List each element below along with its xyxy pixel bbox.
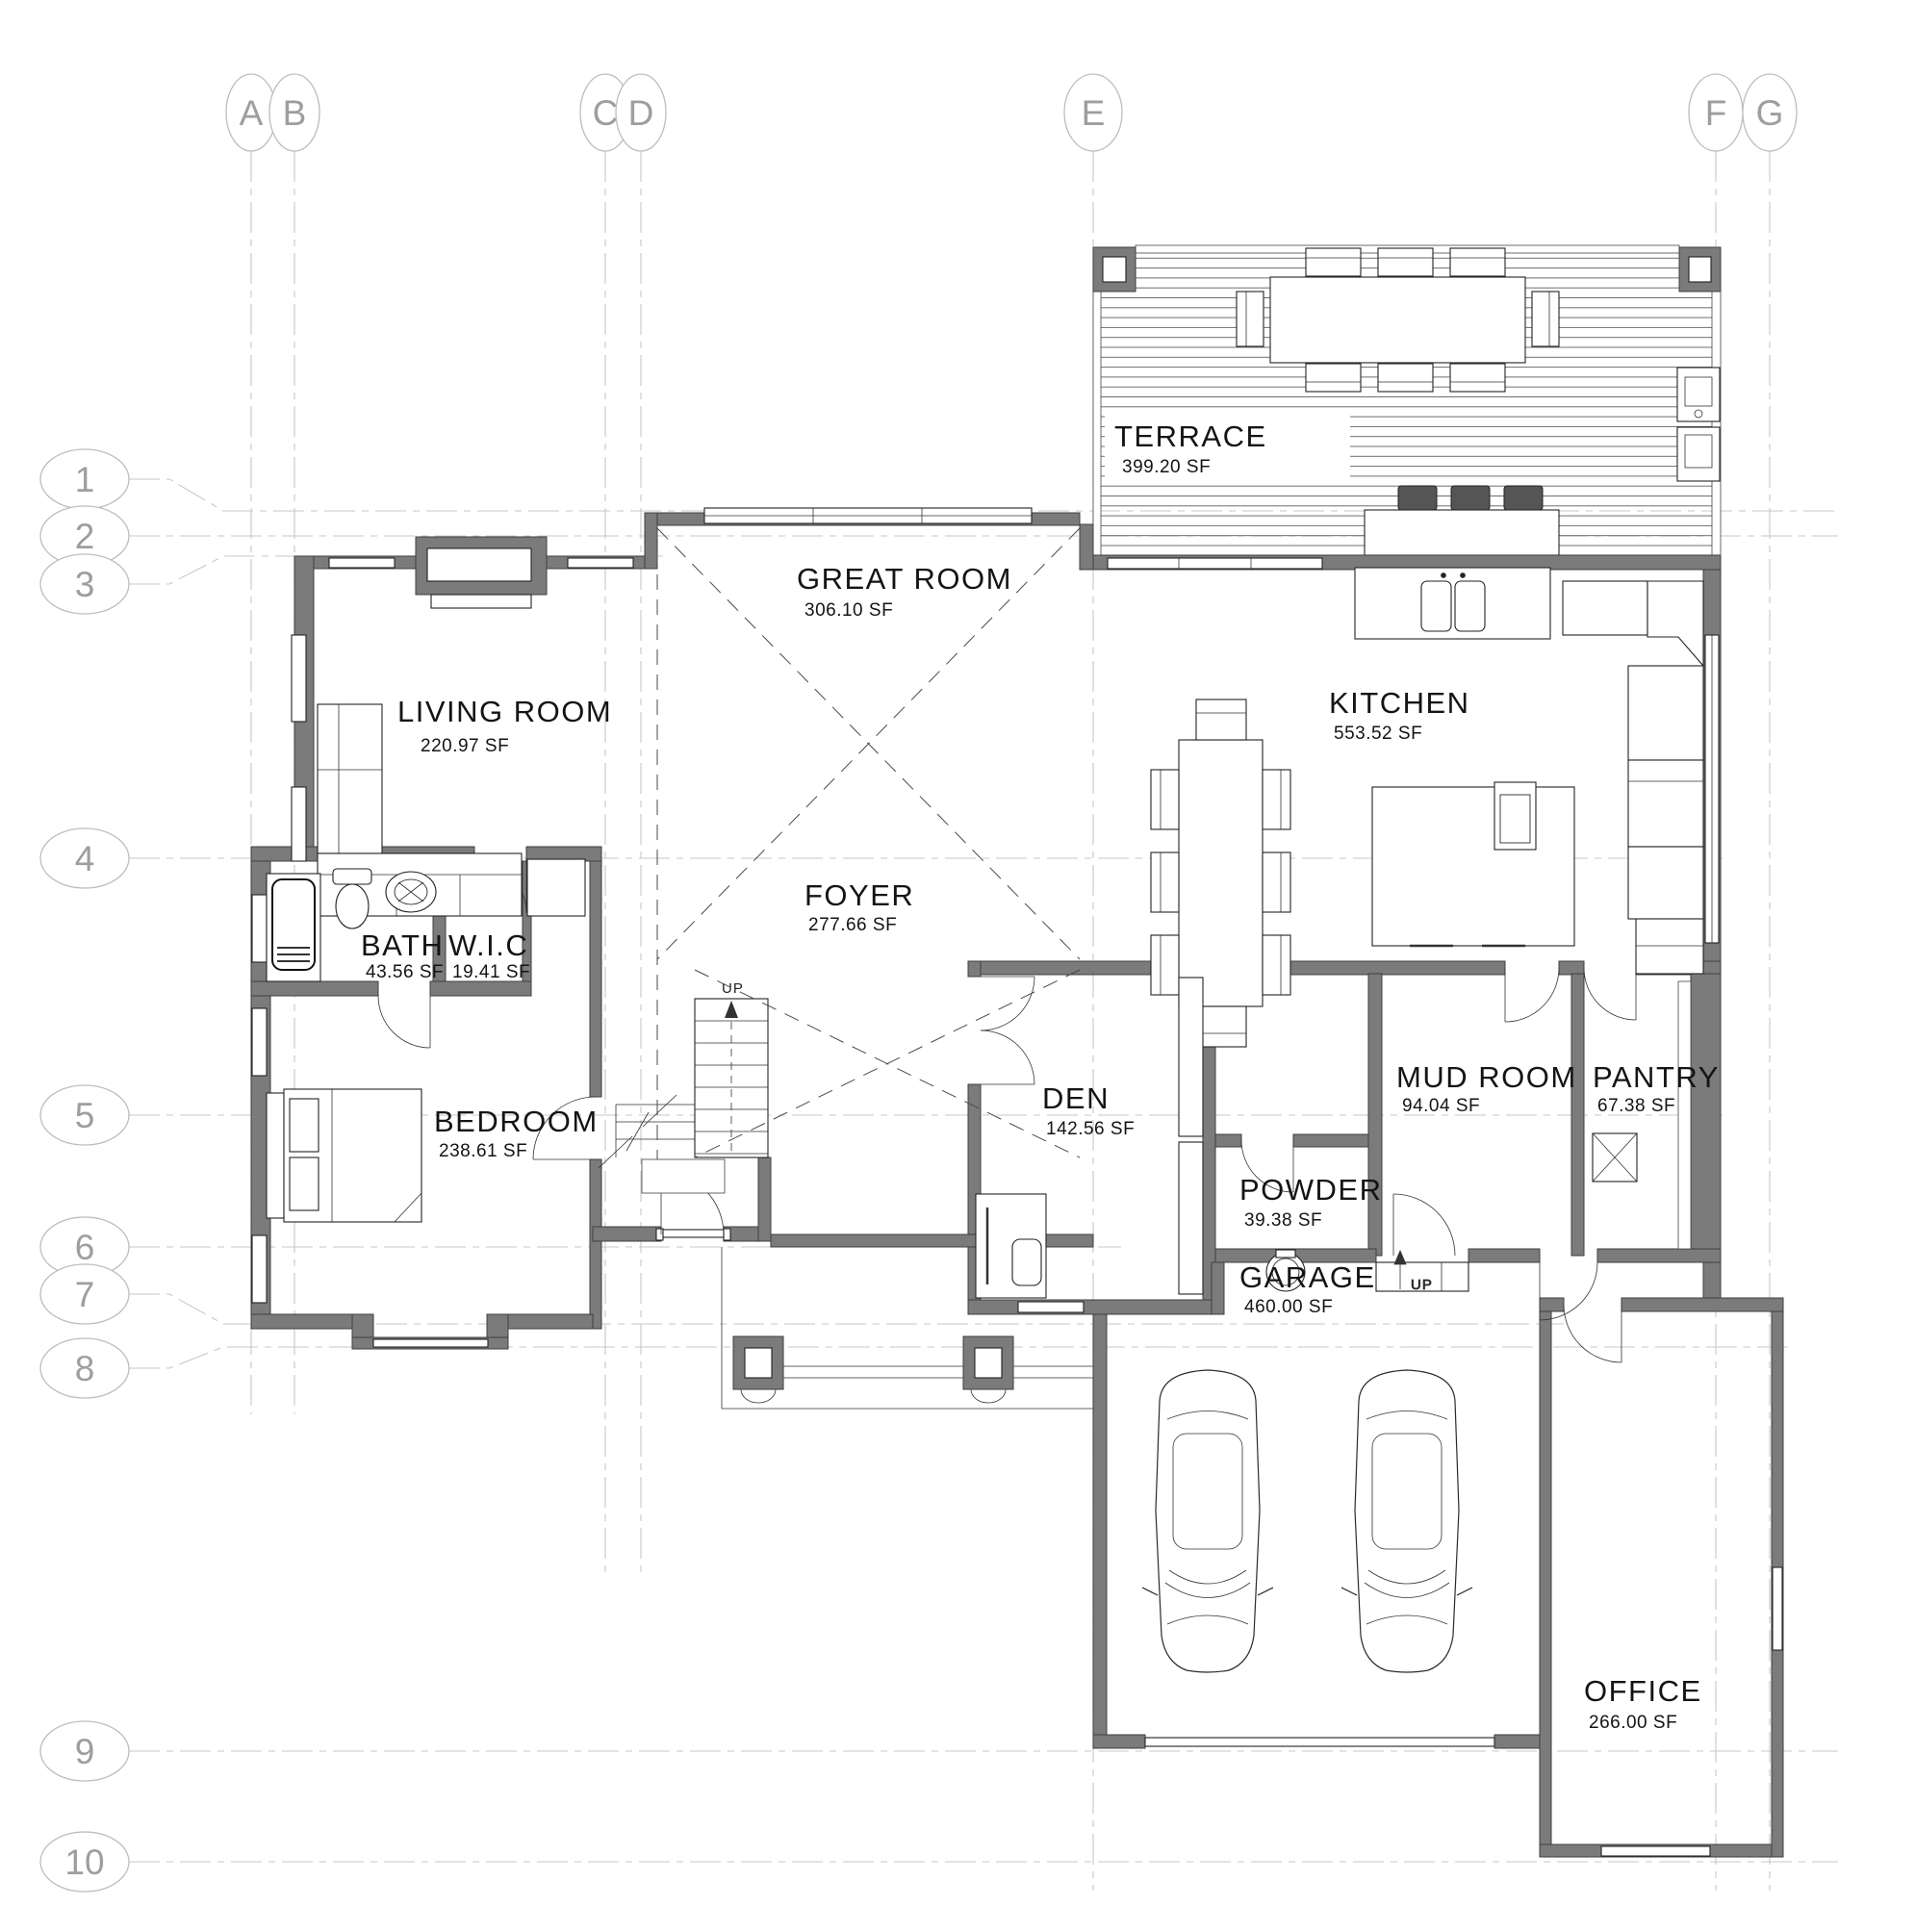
grid-col-label: B <box>283 93 307 133</box>
toilet <box>333 869 371 928</box>
den-french-doors <box>981 977 1034 1084</box>
terrace-left-edge <box>1093 292 1101 555</box>
grid-row-label: 3 <box>75 565 95 604</box>
room-label-kitchen: KITCHEN <box>1329 686 1470 720</box>
grid-row-label: 1 <box>75 460 95 499</box>
grid-row-label: 9 <box>75 1732 95 1771</box>
terrace-bar-counter <box>1365 510 1559 555</box>
room-area-kitchen: 553.52 SF <box>1334 724 1422 744</box>
garage-up-label: UP <box>1411 1277 1433 1293</box>
grid-col-label: F <box>1705 93 1727 133</box>
room-label-powder: POWDER <box>1239 1173 1383 1207</box>
room-area-living-room: 220.97 SF <box>421 736 509 756</box>
office-door <box>1564 1305 1621 1362</box>
grid-row-label: 8 <box>75 1349 95 1388</box>
living-room-window <box>292 787 306 861</box>
office-window <box>1601 1846 1710 1856</box>
grid-row-label: 2 <box>75 517 95 556</box>
room-area-den: 142.56 SF <box>1046 1119 1135 1139</box>
terrace <box>1093 245 1721 555</box>
car <box>1341 1370 1472 1672</box>
room-label-bath: BATH <box>361 928 444 962</box>
bedroom-bay-window <box>373 1339 488 1347</box>
terrace-table <box>1270 277 1525 363</box>
bedroom-window <box>252 1235 267 1303</box>
den-desk <box>976 1194 1046 1298</box>
room-label-pantry: PANTRY <box>1593 1060 1720 1094</box>
den-bookcases <box>1179 978 1203 1294</box>
bedroom-window <box>252 895 267 962</box>
room-area-bath: 43.56 SF <box>366 962 444 982</box>
stair: UP <box>599 980 768 1193</box>
bar-stool <box>1451 486 1490 510</box>
room-area-wic: 19.41 SF <box>452 962 530 982</box>
room-label-foyer: FOYER <box>804 878 914 912</box>
kitchen-island <box>1372 782 1574 946</box>
porch-column-base <box>741 1389 776 1403</box>
bath-door <box>378 996 430 1048</box>
bathtub <box>267 874 320 981</box>
bed <box>267 1089 421 1222</box>
mud-garage-door <box>1393 1194 1455 1256</box>
bedroom-window <box>252 1008 267 1076</box>
dining-set <box>1151 699 1290 1047</box>
entry-sidelight <box>724 1229 730 1240</box>
room-label-great-room: GREAT ROOM <box>797 562 1012 596</box>
grid-col-label: A <box>240 93 264 133</box>
room-label-wic: W.I.C <box>448 928 528 962</box>
grid-col-label: G <box>1756 93 1784 133</box>
terrace-post-left-core <box>1103 257 1126 282</box>
bar-stool <box>1504 486 1543 510</box>
room-area-terrace: 399.20 SF <box>1122 457 1211 477</box>
grid-row-label: 10 <box>64 1843 104 1882</box>
bar-stool <box>1398 486 1437 510</box>
kitchen-cabinets <box>1563 581 1703 974</box>
pantry-door <box>1584 968 1636 1020</box>
porch-column-base <box>971 1389 1006 1403</box>
room-label-den: DEN <box>1042 1081 1110 1115</box>
living-room-window <box>568 558 633 568</box>
grid-row-label: 4 <box>75 839 95 878</box>
porch-column-core <box>745 1348 772 1378</box>
room-label-terrace: TERRACE <box>1114 419 1267 453</box>
room-area-pantry: 67.38 SF <box>1597 1096 1675 1116</box>
foyer-niche <box>642 1159 725 1193</box>
room-area-foyer: 277.66 SF <box>808 915 897 935</box>
car <box>1142 1370 1273 1672</box>
room-area-powder: 39.38 SF <box>1244 1210 1322 1231</box>
entry-sidelight <box>656 1229 663 1240</box>
floor-plan-page: { "grid": { "columns": [ {"label":"A","x… <box>0 0 1915 1932</box>
office-side-window <box>1773 1567 1782 1650</box>
stair-up-label: UP <box>722 980 744 997</box>
mud-room-door <box>1505 968 1559 1022</box>
room-area-office: 266.00 SF <box>1589 1713 1677 1733</box>
grid-row-label: 5 <box>75 1096 95 1135</box>
living-room-window <box>292 635 306 722</box>
grid-col-label: D <box>628 93 654 133</box>
fireplace-hearth <box>431 595 531 608</box>
grid-col-label: E <box>1082 93 1106 133</box>
floor-plan-canvas: UP <box>0 0 1915 1932</box>
den-window <box>1018 1302 1084 1312</box>
terrace-right-edge <box>1712 292 1721 555</box>
living-room-window <box>329 558 395 568</box>
room-area-mud-room: 94.04 SF <box>1402 1096 1480 1116</box>
kitchen-sink-counter <box>1355 568 1550 639</box>
room-area-great-room: 306.10 SF <box>804 600 893 621</box>
room-label-office: OFFICE <box>1584 1674 1702 1708</box>
kitchen-window <box>1108 558 1322 569</box>
mud-steps: UP <box>1376 1251 1468 1293</box>
room-label-garage: GARAGE <box>1239 1260 1376 1294</box>
garage-door <box>1145 1738 1494 1746</box>
bath-sink <box>386 872 436 912</box>
room-area-bedroom: 238.61 SF <box>439 1141 527 1161</box>
room-area-garage: 460.00 SF <box>1244 1297 1333 1317</box>
grid-row-label: 6 <box>75 1228 95 1267</box>
room-label-bedroom: BEDROOM <box>434 1105 599 1138</box>
grid-col-label: C <box>593 93 619 133</box>
fireplace-firebox <box>427 548 531 581</box>
terrace-post-right-core <box>1689 257 1711 282</box>
room-label-mud-room: MUD ROOM <box>1396 1060 1577 1094</box>
grid-row-label: 7 <box>75 1275 95 1314</box>
porch-column-core <box>975 1348 1002 1378</box>
room-label-living-room: LIVING ROOM <box>397 695 612 728</box>
